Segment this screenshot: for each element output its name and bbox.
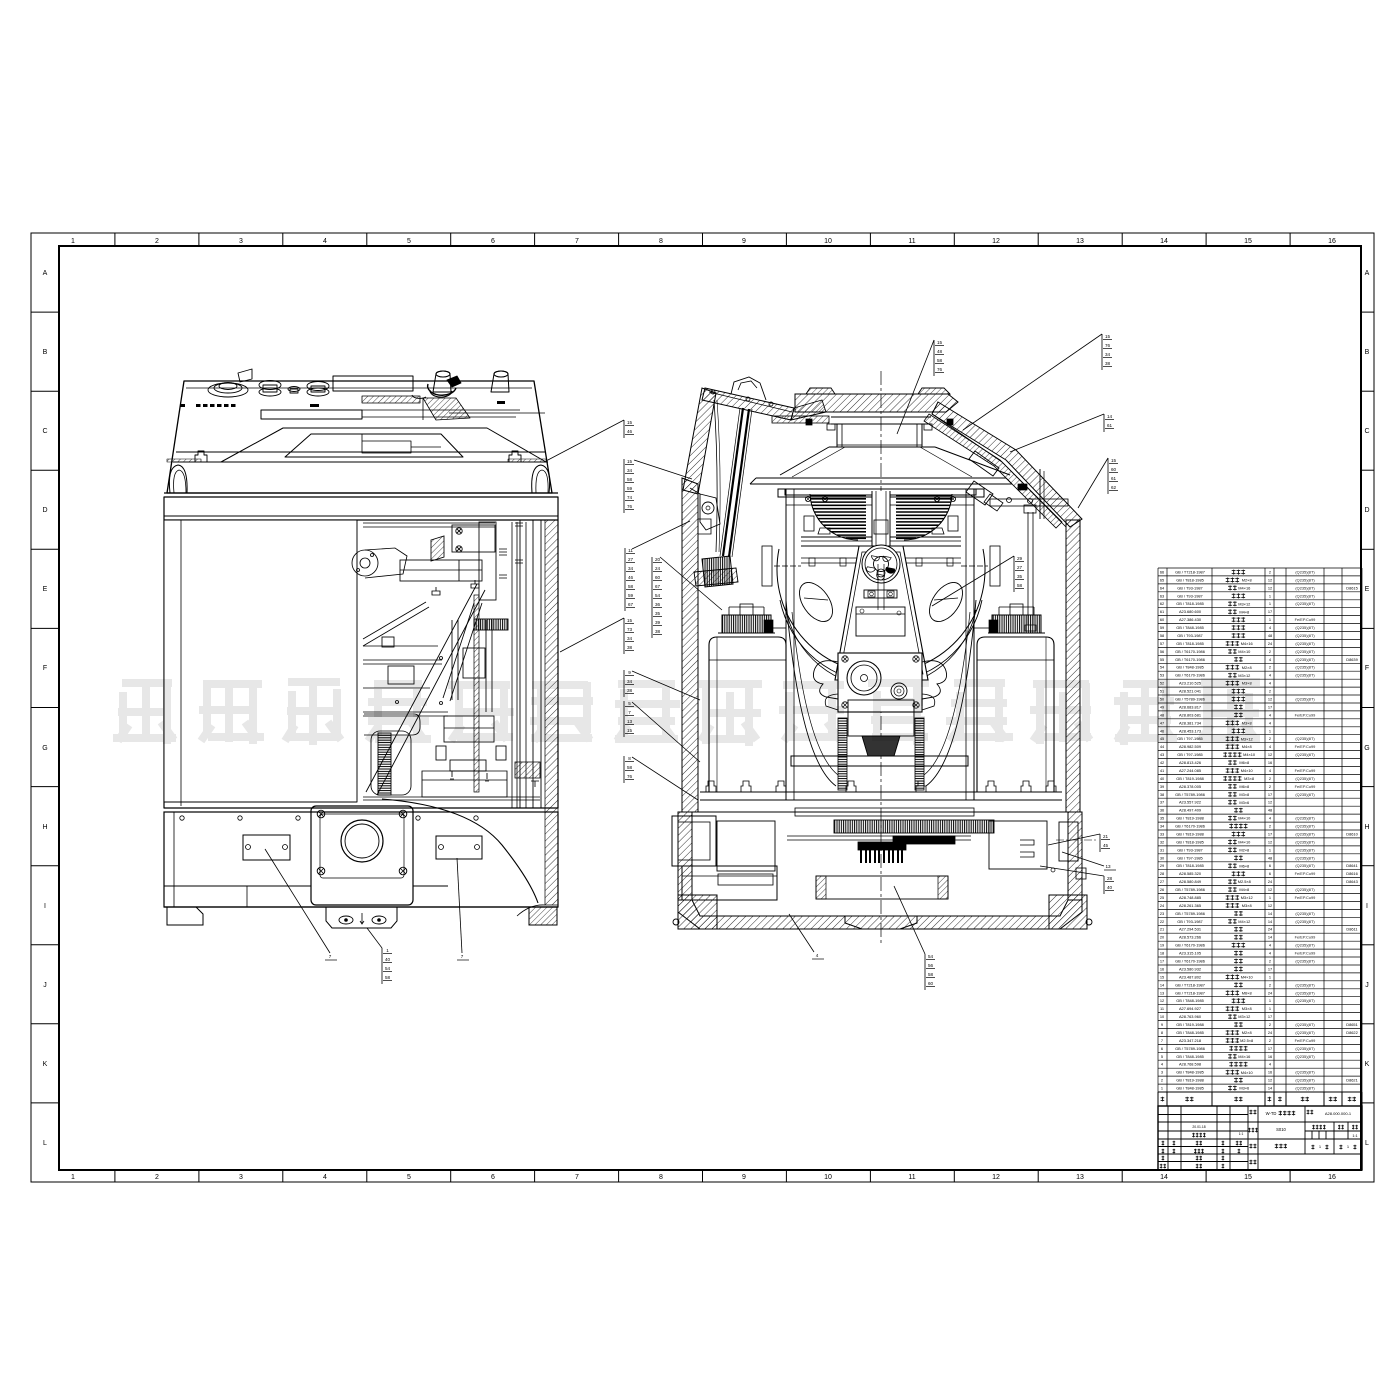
svg-text:8: 8 (1161, 1030, 1163, 1035)
svg-text:E: E (1365, 586, 1370, 593)
svg-text:9: 9 (742, 1174, 746, 1181)
svg-text:1: 1 (1269, 974, 1271, 979)
svg-text:M3×6: M3×6 (1239, 800, 1249, 805)
svg-text:GB / T6170-1986: GB / T6170-1986 (1175, 824, 1205, 829)
svg-text:12: 12 (1268, 752, 1272, 757)
svg-text:62: 62 (1160, 601, 1164, 606)
svg-text:17: 17 (1268, 609, 1272, 614)
svg-text:A28.573.266: A28.573.266 (1179, 935, 1201, 940)
svg-text:I: I (44, 903, 46, 910)
svg-text:76: 76 (627, 774, 633, 779)
svg-text:39: 39 (1160, 784, 1164, 789)
svg-text:8: 8 (659, 1174, 663, 1181)
svg-text:61: 61 (1111, 476, 1117, 481)
svg-text:D8622: D8622 (1346, 1030, 1357, 1035)
svg-text:53: 53 (1160, 673, 1164, 678)
svg-text:40: 40 (385, 957, 391, 962)
svg-text:(Q235)(8T): (Q235)(8T) (1295, 577, 1315, 582)
svg-text:33: 33 (1160, 832, 1164, 837)
svg-text:65: 65 (1160, 577, 1164, 582)
svg-text:M4×16: M4×16 (1238, 585, 1250, 590)
svg-text:2: 2 (155, 1174, 159, 1181)
svg-text:67: 67 (655, 584, 661, 589)
svg-text:(Q235)(8T): (Q235)(8T) (1295, 911, 1315, 916)
svg-text:4: 4 (816, 953, 819, 958)
svg-text:6: 6 (1269, 871, 1271, 876)
svg-text:GB / T5789-1986: GB / T5789-1986 (1175, 911, 1205, 916)
svg-text:M2×8: M2×8 (1242, 578, 1252, 583)
svg-text:GB / T818-1985: GB / T818-1985 (1176, 641, 1204, 646)
svg-text:12: 12 (1268, 577, 1272, 582)
svg-text:1: 1 (1161, 1086, 1163, 1091)
svg-text:GB / T819-1988: GB / T819-1988 (1176, 1078, 1204, 1083)
svg-text:A28.378.005: A28.378.005 (1179, 784, 1201, 789)
svg-text:6: 6 (1161, 1046, 1163, 1051)
svg-text:1: 1 (1269, 617, 1271, 622)
svg-text:A28.683.817: A28.683.817 (1179, 704, 1201, 709)
svg-text:(Q235)(8T): (Q235)(8T) (1295, 855, 1315, 860)
svg-text:34: 34 (628, 566, 634, 571)
svg-text:2: 2 (1269, 1022, 1271, 1027)
svg-text:M4×16: M4×16 (1241, 641, 1253, 646)
svg-text:GB / T7218-1987: GB / T7218-1987 (1175, 990, 1205, 995)
svg-text:(Q235)(8T): (Q235)(8T) (1295, 1070, 1315, 1075)
svg-text:43: 43 (1160, 752, 1164, 757)
svg-text:1: 1 (71, 1174, 75, 1181)
svg-text:7: 7 (329, 954, 332, 959)
svg-text:5: 5 (407, 238, 411, 245)
svg-text:16: 16 (1268, 760, 1272, 765)
svg-text:M4×16: M4×16 (1238, 1054, 1250, 1059)
svg-text:2: 2 (1269, 959, 1271, 964)
svg-text:15: 15 (1105, 334, 1111, 339)
svg-text:(Q235)(8T): (Q235)(8T) (1295, 832, 1315, 837)
svg-text:GB / T848-1985: GB / T848-1985 (1176, 1030, 1204, 1035)
svg-text:GB / T819-1988: GB / T819-1988 (1176, 816, 1204, 821)
svg-text:GB / T6170-1986: GB / T6170-1986 (1175, 959, 1205, 964)
svg-text:12: 12 (1268, 800, 1272, 805)
svg-text:28: 28 (1160, 871, 1164, 876)
svg-text:2: 2 (1269, 982, 1271, 987)
svg-text:11: 11 (908, 238, 915, 245)
svg-text:40: 40 (1107, 885, 1113, 890)
svg-text:1: 1 (1269, 601, 1271, 606)
svg-text:Fe/EP.Cu99: Fe/EP.Cu99 (1295, 744, 1316, 749)
svg-text:A28.261.365: A28.261.365 (1179, 903, 1201, 908)
svg-text:A23.680.600: A23.680.600 (1179, 609, 1202, 614)
svg-text:58: 58 (385, 975, 391, 980)
svg-text:A28.982.509: A28.982.509 (1179, 744, 1201, 749)
svg-text:59: 59 (627, 486, 633, 491)
svg-text:2: 2 (1269, 649, 1271, 654)
svg-text:M3×12: M3×12 (1238, 1014, 1250, 1019)
svg-text:A27.386.430: A27.386.430 (1179, 617, 1202, 622)
svg-text:Fe/EP.Cu99: Fe/EP.Cu99 (1295, 784, 1316, 789)
svg-text:11: 11 (908, 1174, 915, 1181)
svg-text:GB / T93-1987: GB / T93-1987 (1177, 919, 1202, 924)
svg-text:GB / T818-1985: GB / T818-1985 (1176, 863, 1204, 868)
svg-text:27: 27 (1017, 565, 1023, 570)
svg-text:G: G (42, 745, 47, 752)
svg-text:12: 12 (1268, 697, 1272, 702)
svg-text:38: 38 (655, 629, 661, 634)
svg-text:54: 54 (655, 593, 661, 598)
svg-text:D8651: D8651 (1346, 1022, 1357, 1027)
svg-text:GB / T7218-1987: GB / T7218-1987 (1175, 570, 1205, 575)
svg-text:34: 34 (627, 636, 633, 641)
svg-text:63: 63 (1160, 593, 1164, 598)
svg-text:(Q235)(8T): (Q235)(8T) (1295, 959, 1315, 964)
svg-text:(Q235)(8T): (Q235)(8T) (1295, 792, 1315, 797)
svg-text:35: 35 (1160, 816, 1164, 821)
svg-text:61: 61 (1107, 423, 1113, 428)
svg-text:A: A (1365, 270, 1370, 277)
svg-text:(Q235)(8T): (Q235)(8T) (1295, 601, 1315, 606)
svg-text:(Q235)(8T): (Q235)(8T) (1295, 943, 1315, 948)
svg-text:A28.497.409: A28.497.409 (1179, 808, 1201, 813)
svg-text:29: 29 (1160, 863, 1164, 868)
svg-text:M6×8: M6×8 (1242, 990, 1252, 995)
svg-text:K: K (1365, 1061, 1370, 1068)
svg-text:1: 1 (1269, 998, 1271, 1003)
svg-text:(Q235)(8T): (Q235)(8T) (1295, 649, 1315, 654)
svg-text:8: 8 (628, 756, 631, 761)
svg-text:GB / T848-1985: GB / T848-1985 (1176, 625, 1204, 630)
svg-text:2: 2 (1269, 776, 1271, 781)
svg-text:GB / T5789-1986: GB / T5789-1986 (1175, 792, 1205, 797)
svg-text:2: 2 (1161, 1078, 1163, 1083)
svg-text:23: 23 (1160, 911, 1164, 916)
svg-text:C: C (1364, 428, 1369, 435)
svg-text:A23.315.105: A23.315.105 (1179, 951, 1201, 956)
svg-text:B: B (1365, 349, 1370, 356)
svg-text:A: A (43, 270, 48, 277)
svg-text:17: 17 (1268, 1014, 1272, 1019)
svg-text:D8643: D8643 (1346, 879, 1357, 884)
svg-text:GB / T93-1987: GB / T93-1987 (1177, 585, 1202, 590)
svg-text:67: 67 (628, 602, 634, 607)
svg-text:M4×10: M4×10 (1238, 816, 1251, 821)
svg-text:(Q235)(8T): (Q235)(8T) (1295, 998, 1315, 1003)
svg-text:A23.557.922: A23.557.922 (1179, 800, 1201, 805)
svg-text:1:1: 1:1 (1239, 1132, 1244, 1136)
svg-text:3: 3 (239, 1174, 243, 1181)
svg-text:Fe/EP.Cu99: Fe/EP.Cu99 (1295, 712, 1316, 717)
svg-text:15: 15 (1111, 458, 1117, 463)
svg-text:9: 9 (742, 238, 746, 245)
svg-text:GB / T818-1985: GB / T818-1985 (1176, 839, 1204, 844)
svg-text:C: C (42, 428, 47, 435)
svg-text:(Q235)(8T): (Q235)(8T) (1295, 1086, 1315, 1091)
svg-text:D8616: D8616 (1346, 871, 1357, 876)
svg-text:M3×8: M3×8 (1239, 792, 1249, 797)
svg-text:2: 2 (1269, 1038, 1271, 1043)
svg-text:(Q235)(8T): (Q235)(8T) (1295, 697, 1315, 702)
svg-text:GB / T848-1985: GB / T848-1985 (1176, 1070, 1204, 1075)
svg-text:A28.580.849: A28.580.849 (1179, 879, 1201, 884)
svg-text:GB / T6170-1986: GB / T6170-1986 (1175, 657, 1205, 662)
svg-text:(Q235)(8T): (Q235)(8T) (1295, 776, 1315, 781)
svg-text:7: 7 (575, 1174, 579, 1181)
svg-text:GB / T93-1987: GB / T93-1987 (1177, 633, 1202, 638)
svg-text:GB / T5789-1986: GB / T5789-1986 (1175, 1046, 1205, 1051)
svg-text:(Q235)(8T): (Q235)(8T) (1295, 1022, 1315, 1027)
svg-text:1:1: 1:1 (1352, 1134, 1357, 1138)
svg-text:GB / T6170-1986: GB / T6170-1986 (1175, 943, 1205, 948)
svg-text:A27.694.927: A27.694.927 (1179, 1006, 1201, 1011)
svg-text:2: 2 (155, 238, 159, 245)
svg-text:27: 27 (1160, 879, 1164, 884)
svg-text:32: 32 (1160, 839, 1164, 844)
svg-text:(Q235)(8T): (Q235)(8T) (1295, 847, 1315, 852)
svg-text:GB / T93-1987: GB / T93-1987 (1177, 593, 1202, 598)
svg-text:76: 76 (1105, 343, 1111, 348)
svg-text:15: 15 (627, 459, 633, 464)
svg-text:16: 16 (1328, 238, 1336, 245)
svg-text:46: 46 (627, 429, 633, 434)
svg-text:74: 74 (627, 495, 633, 500)
svg-text:L: L (43, 1140, 47, 1147)
svg-text:18: 18 (1160, 951, 1164, 956)
svg-text:60: 60 (655, 575, 661, 580)
svg-text:H: H (1364, 824, 1369, 831)
svg-text:GB / T6170-1986: GB / T6170-1986 (1175, 649, 1205, 654)
svg-text:(Q235)(8T): (Q235)(8T) (1295, 1078, 1315, 1083)
svg-text:Fe/EP.Cu99: Fe/EP.Cu99 (1295, 617, 1316, 622)
svg-text:M6×8: M6×8 (1239, 760, 1249, 765)
svg-text:38: 38 (627, 645, 633, 650)
svg-text:GB / T819-1988: GB / T819-1988 (1176, 776, 1204, 781)
svg-text:24: 24 (655, 566, 661, 571)
svg-text:(Q235)(8T): (Q235)(8T) (1295, 863, 1315, 868)
svg-text:D: D (1364, 507, 1369, 514)
svg-text:13: 13 (1160, 990, 1164, 995)
svg-text:58: 58 (1017, 583, 1023, 588)
svg-text:16: 16 (1268, 1070, 1272, 1075)
svg-text:5: 5 (1161, 1054, 1163, 1059)
svg-text:GB / T848-1985: GB / T848-1985 (1176, 1054, 1204, 1059)
svg-text:H: H (42, 824, 47, 831)
svg-text:7: 7 (1161, 1038, 1163, 1043)
svg-text:K: K (43, 1061, 48, 1068)
svg-text:8: 8 (659, 238, 663, 245)
svg-text:76: 76 (937, 367, 943, 372)
svg-text:76: 76 (627, 504, 633, 509)
svg-text:M4×10: M4×10 (1238, 840, 1251, 845)
svg-text:M3×8: M3×8 (1244, 776, 1254, 781)
svg-text:(Q235)(8T): (Q235)(8T) (1295, 736, 1315, 741)
svg-text:(Q235)(8T): (Q235)(8T) (1295, 824, 1315, 829)
svg-text:M3×12: M3×12 (1238, 601, 1250, 606)
svg-text:15: 15 (937, 340, 943, 345)
svg-text:6: 6 (491, 238, 495, 245)
svg-text:14: 14 (1160, 1174, 1168, 1181)
svg-text:1: 1 (1269, 728, 1271, 733)
svg-text:48: 48 (1268, 808, 1272, 813)
svg-text:37: 37 (1160, 800, 1164, 805)
svg-text:15: 15 (1244, 238, 1252, 245)
svg-text:A27.244.085: A27.244.085 (1179, 768, 1201, 773)
svg-text:GB / T97-1985: GB / T97-1985 (1177, 855, 1202, 860)
svg-text:21: 21 (1160, 927, 1164, 932)
svg-text:58: 58 (627, 477, 633, 482)
svg-text:55: 55 (1160, 657, 1164, 662)
svg-text:48: 48 (937, 349, 943, 354)
svg-text:22: 22 (1160, 919, 1164, 924)
svg-text:(Q235)(8T): (Q235)(8T) (1295, 919, 1315, 924)
svg-text:D: D (42, 507, 47, 514)
svg-text:3: 3 (1161, 1070, 1163, 1075)
svg-text:58: 58 (1160, 633, 1164, 638)
svg-text:(Q235)(8T): (Q235)(8T) (1295, 625, 1315, 630)
svg-text:M3×8: M3×8 (1242, 903, 1252, 908)
svg-text:D8615: D8615 (1346, 585, 1357, 590)
svg-text:35: 35 (655, 611, 661, 616)
svg-text:(Q235)(8T): (Q235)(8T) (1295, 673, 1315, 678)
svg-text:14: 14 (1160, 238, 1168, 245)
svg-text:M3×12: M3×12 (1238, 673, 1250, 678)
svg-text:Fe/EP.Cu99: Fe/EP.Cu99 (1295, 871, 1316, 876)
svg-text:20: 20 (655, 557, 661, 562)
svg-text:16: 16 (1328, 1174, 1336, 1181)
svg-text:A23.210.525: A23.210.525 (1179, 681, 1201, 686)
svg-text:1: 1 (1269, 895, 1271, 900)
svg-text:56: 56 (1160, 649, 1164, 654)
svg-text:M2×8: M2×8 (1242, 1030, 1252, 1035)
svg-text:GB / T818-1985: GB / T818-1985 (1176, 577, 1204, 582)
svg-text:A28.813.426: A28.813.426 (1179, 760, 1201, 765)
svg-text:GB / T848-1985: GB / T848-1985 (1176, 665, 1204, 670)
svg-text:M2.5×8: M2.5×8 (1238, 879, 1251, 884)
svg-text:41: 41 (1160, 768, 1164, 773)
svg-text:M3×6: M3×6 (1239, 1086, 1249, 1091)
svg-text:(Q235)(8T): (Q235)(8T) (1295, 816, 1315, 821)
svg-text:GB / T5789-1986: GB / T5789-1986 (1175, 887, 1205, 892)
svg-text:GB / T6170-1986: GB / T6170-1986 (1175, 673, 1205, 678)
svg-text:59: 59 (1160, 625, 1164, 630)
svg-text:58: 58 (627, 765, 633, 770)
svg-text:15: 15 (627, 618, 633, 623)
svg-text:Fe/EP.Cu99: Fe/EP.Cu99 (1295, 1038, 1316, 1043)
svg-text:M2×8: M2×8 (1239, 847, 1249, 852)
svg-text:A23.487.802: A23.487.802 (1179, 974, 1201, 979)
svg-text:A28.768.598: A28.768.598 (1179, 1062, 1201, 1067)
svg-text:L: L (1365, 1140, 1369, 1147)
svg-text:(Q235)(8T): (Q235)(8T) (1295, 990, 1315, 995)
svg-text:38: 38 (1160, 792, 1164, 797)
svg-text:M4×10: M4×10 (1243, 752, 1256, 757)
svg-text:15: 15 (627, 420, 633, 425)
svg-text:4: 4 (323, 1174, 327, 1181)
svg-text:21: 21 (1103, 834, 1109, 839)
svg-text:26: 26 (1160, 887, 1164, 892)
svg-text:M4×8: M4×8 (1239, 887, 1249, 892)
svg-text:1: 1 (386, 948, 389, 953)
svg-text:1: 1 (1269, 593, 1271, 598)
svg-text:34: 34 (627, 468, 633, 473)
svg-text:1: 1 (1269, 847, 1271, 852)
svg-text:20.01.18: 20.01.18 (1192, 1125, 1205, 1129)
svg-text:(Q235)(8T): (Q235)(8T) (1295, 593, 1315, 598)
svg-text:36: 36 (655, 602, 661, 607)
svg-text:Fe/EP.Cu99: Fe/EP.Cu99 (1295, 895, 1316, 900)
svg-text:J: J (1365, 982, 1369, 989)
svg-text:M4×10: M4×10 (1241, 1070, 1254, 1075)
svg-text:19: 19 (1160, 943, 1164, 948)
svg-text:M3×12: M3×12 (1241, 895, 1253, 900)
svg-text:38: 38 (1105, 361, 1111, 366)
svg-text:48: 48 (1268, 633, 1272, 638)
svg-text:17: 17 (1160, 959, 1164, 964)
svg-text:12: 12 (992, 1174, 1000, 1181)
svg-text:D8621: D8621 (1346, 1078, 1357, 1083)
svg-text:A23.580.932: A23.580.932 (1179, 966, 1201, 971)
svg-text:2: 2 (1269, 784, 1271, 789)
svg-text:2: 2 (1269, 689, 1271, 694)
svg-text:S010: S010 (1276, 1127, 1286, 1132)
svg-text:(Q235)(8T): (Q235)(8T) (1295, 982, 1315, 987)
svg-text:27: 27 (628, 557, 634, 562)
svg-text:Fe/EP.Cu99: Fe/EP.Cu99 (1295, 768, 1316, 773)
svg-text:29: 29 (1017, 556, 1023, 561)
svg-text:M2.5×8: M2.5×8 (1240, 1038, 1253, 1043)
svg-text:(Q235)(8T): (Q235)(8T) (1295, 641, 1315, 646)
svg-text:F: F (43, 665, 47, 672)
svg-text:(Q235)(8T): (Q235)(8T) (1295, 665, 1315, 670)
svg-text:A28.763.960: A28.763.960 (1179, 1014, 1202, 1019)
svg-text:10: 10 (824, 238, 832, 245)
svg-text:GB / T93-1987: GB / T93-1987 (1177, 847, 1202, 852)
svg-text:5: 5 (407, 1174, 411, 1181)
svg-text:I: I (1366, 903, 1368, 910)
svg-text:2: 2 (1269, 824, 1271, 829)
svg-text:M4×12: M4×12 (1238, 919, 1250, 924)
svg-text:W-TD: W-TD (1266, 1111, 1277, 1116)
svg-text:34: 34 (1105, 352, 1111, 357)
svg-text:M6×8: M6×8 (1239, 784, 1249, 789)
svg-text:A28.521.041: A28.521.041 (1179, 689, 1201, 694)
svg-text:9: 9 (1161, 1022, 1163, 1027)
svg-text:6: 6 (1269, 863, 1271, 868)
svg-text:2: 2 (1269, 736, 1271, 741)
svg-text:(Q235)(8T): (Q235)(8T) (1295, 1030, 1315, 1035)
svg-text:M2×8: M2×8 (1242, 665, 1252, 670)
svg-text:(Q235)(8T): (Q235)(8T) (1295, 752, 1315, 757)
svg-text:GB / T97-1985: GB / T97-1985 (1177, 752, 1202, 757)
svg-text:G: G (1364, 745, 1369, 752)
svg-text:12: 12 (1268, 887, 1272, 892)
svg-text:A28.748.885: A28.748.885 (1179, 895, 1201, 900)
svg-text:60: 60 (1111, 467, 1117, 472)
svg-text:9: 9 (628, 670, 631, 675)
svg-text:7: 7 (575, 238, 579, 245)
svg-text:60: 60 (928, 981, 934, 986)
svg-text:(Q235)(8T): (Q235)(8T) (1295, 1054, 1315, 1059)
svg-text:14: 14 (1107, 414, 1113, 419)
svg-text:36: 36 (1160, 808, 1164, 813)
svg-text:7: 7 (461, 954, 464, 959)
svg-text:(Q235)(8T): (Q235)(8T) (1295, 887, 1315, 892)
svg-text:13: 13 (1076, 238, 1084, 245)
svg-text:35: 35 (1017, 574, 1023, 579)
svg-text:4: 4 (323, 238, 327, 245)
svg-text:M4×8: M4×8 (1239, 609, 1249, 614)
svg-text:A23.347.218: A23.347.218 (1179, 1038, 1201, 1043)
svg-text:(Q235)(8T): (Q235)(8T) (1295, 585, 1315, 590)
svg-text:3: 3 (239, 238, 243, 245)
svg-text:59: 59 (628, 593, 634, 598)
svg-text:M6×8: M6×8 (1239, 863, 1249, 868)
